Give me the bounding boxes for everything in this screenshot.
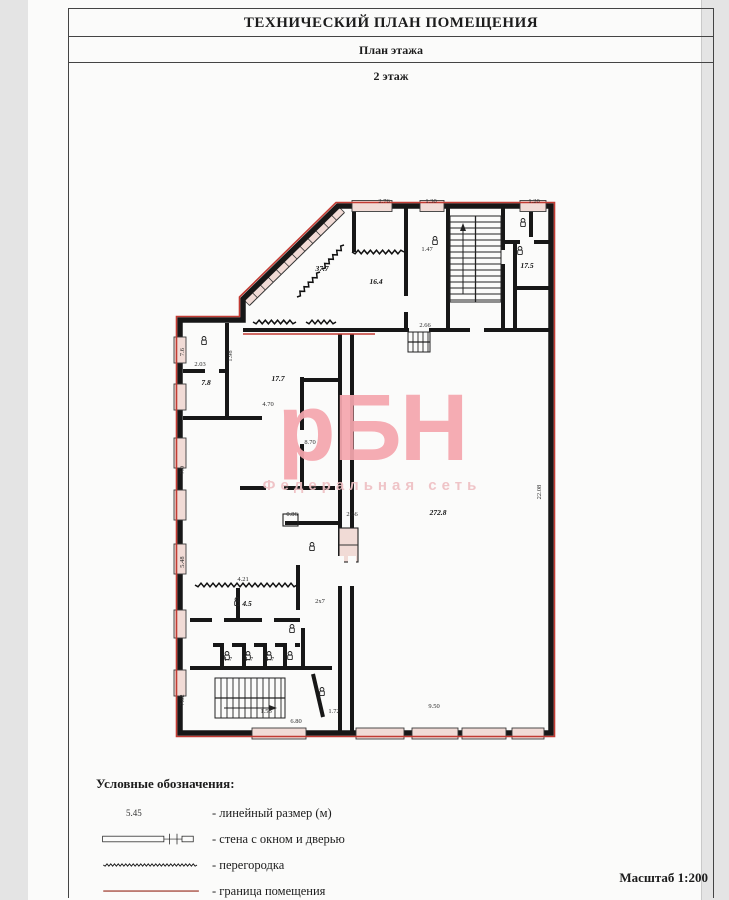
dimension-label: 1.72 [328,708,339,715]
dimension-label: 5.48 [179,556,186,567]
staircase-bottom [215,678,285,718]
dimension-label: 2.76 [378,198,390,205]
dimension-label: 2.03 [194,361,205,368]
dimension-label: 7.0 [179,466,186,474]
wall-window-door-icon [102,830,202,848]
dimension-label: 1.30 [425,198,436,205]
staircase-top [450,216,501,302]
legend: Условные обозначения: 5.45 - линейный ра… [96,776,345,900]
legend-item-label: - перегородка [212,858,284,873]
room-area-label: 17.5 [520,261,533,270]
diagonal-window-band [243,206,345,306]
legend-item-boundary: - граница помещения [96,878,345,900]
dimension-sample-value: 5.45 [126,808,142,818]
dimension-label: 1.98 [227,350,234,361]
dimension-label: 1.7 [224,656,233,663]
room-area-label: 4.5 [241,599,252,608]
screenshot-root: ТЕХНИЧЕСКИЙ ПЛАН ПОМЕЩЕНИЯ План этажа 2 … [0,0,729,900]
legend-item-label: - граница помещения [212,884,325,899]
room-area-label: 7.8 [201,378,211,387]
room-area-label: 37.7 [314,264,328,273]
watermark-subtext: Федеральная сеть [252,477,492,494]
legend-item-linear-dimension: 5.45 - линейный размер (м) [96,800,345,826]
linear-dimension-symbol: 5.45 [102,808,202,818]
dimension-label: 0.86 [286,511,298,518]
dimension-label: 2.66 [419,322,431,329]
scale-note: Масштаб 1:200 [568,870,708,886]
dimension-label: 6.80 [290,718,301,725]
room-area-label: 272.8 [429,508,447,517]
dimension-label: 22.08 [536,485,543,500]
watermark-logo: рБН [252,388,492,469]
legend-item-label: - линейный размер (м) [212,806,332,821]
dimension-label: 1.7 [245,656,254,663]
watermark: рБН Федеральная сеть [252,388,492,494]
dimension-label: 1.47 [421,246,433,253]
dimension-label: 4.21 [237,576,248,583]
legend-item-wall-window-door: - стена с окном и дверью [96,826,345,852]
boundary-line-icon [102,886,202,896]
legend-item-partition: - перегородка [96,852,345,878]
legend-item-label: - стена с окном и дверью [212,832,345,847]
dimension-label: 7.02 [179,694,186,705]
dimension-label: 1.20 [528,198,539,205]
room-area-label: 16.4 [369,277,382,286]
dimension-label: 1.7 [266,656,275,663]
dimension-label: 2.66 [346,511,358,518]
legend-heading: Условные обозначения: [96,776,345,792]
dimension-label: 1.56 [260,708,272,715]
partition-icon [102,859,202,871]
dimension-label: 9.50 [428,703,439,710]
dimension-label: 2х7 [315,598,326,605]
dimension-label: 7.6 [179,347,186,356]
